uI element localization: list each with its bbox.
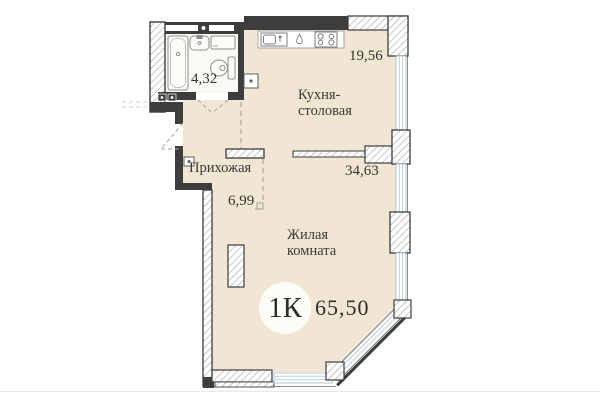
wall-hall-stub [226,149,264,158]
kitchen-name-label: Кухня-столовая [298,87,362,119]
living-area-label: 34,63 [345,163,379,180]
wall-left-step2 [175,112,183,124]
wall-left-step1 [150,102,183,112]
wall-pier [394,300,411,318]
wall-pier [212,370,272,382]
wall-left-living [203,190,212,386]
wall-bathroom-bottom-right [228,92,244,100]
plan-type-badge: 1К [259,282,311,334]
door-swing-icon [161,123,183,149]
wall-top-kitchen [244,16,408,30]
hallway-name-label: Прихожая [189,160,251,176]
wall-pier [326,362,344,380]
kitchen-sink-icon [261,33,287,46]
floor-plan: 4,32 19,56 Кухня-столовая Прихожая 6,99 … [0,0,600,400]
wall-bathroom-right [238,22,244,100]
stove-icon [315,32,337,47]
bottom-facade [212,370,332,387]
column [228,245,244,287]
wall-left-step4 [175,183,212,190]
window-glazing [396,164,406,212]
wall-left-step3 [175,146,183,187]
hallway-area-label: 6,99 [228,193,254,210]
bathroom-area-label: 4,32 [191,71,217,88]
wall-pier [388,16,408,56]
neighbour-wall-dashes [122,102,151,107]
wall-partition-thin [293,151,366,157]
washing-machine-icon [211,36,235,49]
window-glazing [396,56,406,130]
window-glazing [274,373,332,383]
wall-pier [392,130,410,164]
wall-pier [390,212,410,253]
washbasin-icon [190,35,209,50]
page-divider [0,391,600,392]
vent-duct-icon [209,25,234,31]
bathtub-icon [168,36,188,90]
vent-fan-icon [202,26,206,30]
floor-plan-drawing [0,0,600,400]
dimension-marker [257,203,263,209]
kitchen-area-label: 19,56 [349,48,383,65]
total-area-label: 65,50 [315,295,370,321]
vent-shaft-icon [244,74,258,88]
window-glazing [396,253,406,302]
living-name-label: Жилая комната [287,227,357,259]
